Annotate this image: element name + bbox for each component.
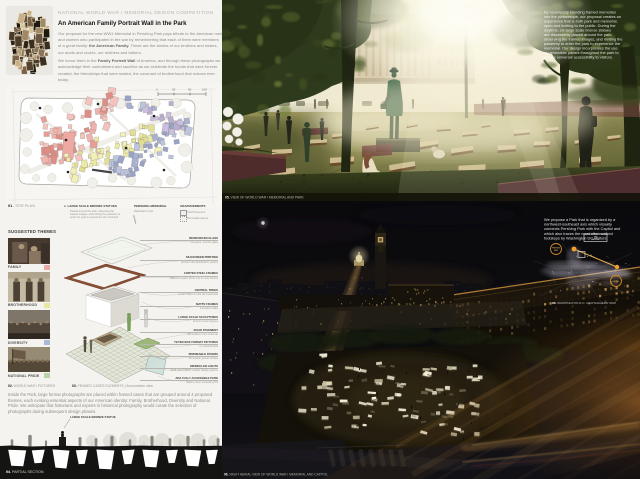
svg-text:06. NIGHT AERIAL VIEW OF WORLD: 06. NIGHT AERIAL VIEW OF WORLD WAR I MEM… — [224, 473, 328, 477]
svg-text:06. WASHINGTON D.C. GEOTAGGERS: 06. WASHINGTON D.C. GEOTAGGERS’ MAP — [552, 301, 616, 305]
svg-text:100: 100 — [202, 88, 207, 92]
svg-text:05. VIEW OF WORLD WAR I MEMORI: 05. VIEW OF WORLD WAR I MEMORIAL AND PAR… — [225, 196, 304, 200]
svg-text:ensure universal accessibility: ensure universal accessibility to visito… — [544, 55, 613, 60]
svg-text:25: 25 — [172, 88, 176, 92]
svg-text:50: 50 — [188, 88, 192, 92]
svg-text:PERSHING: PERSHING — [552, 248, 561, 250]
svg-text:footsteps by Washington DC vis: footsteps by Washington DC visitors. — [544, 235, 607, 240]
